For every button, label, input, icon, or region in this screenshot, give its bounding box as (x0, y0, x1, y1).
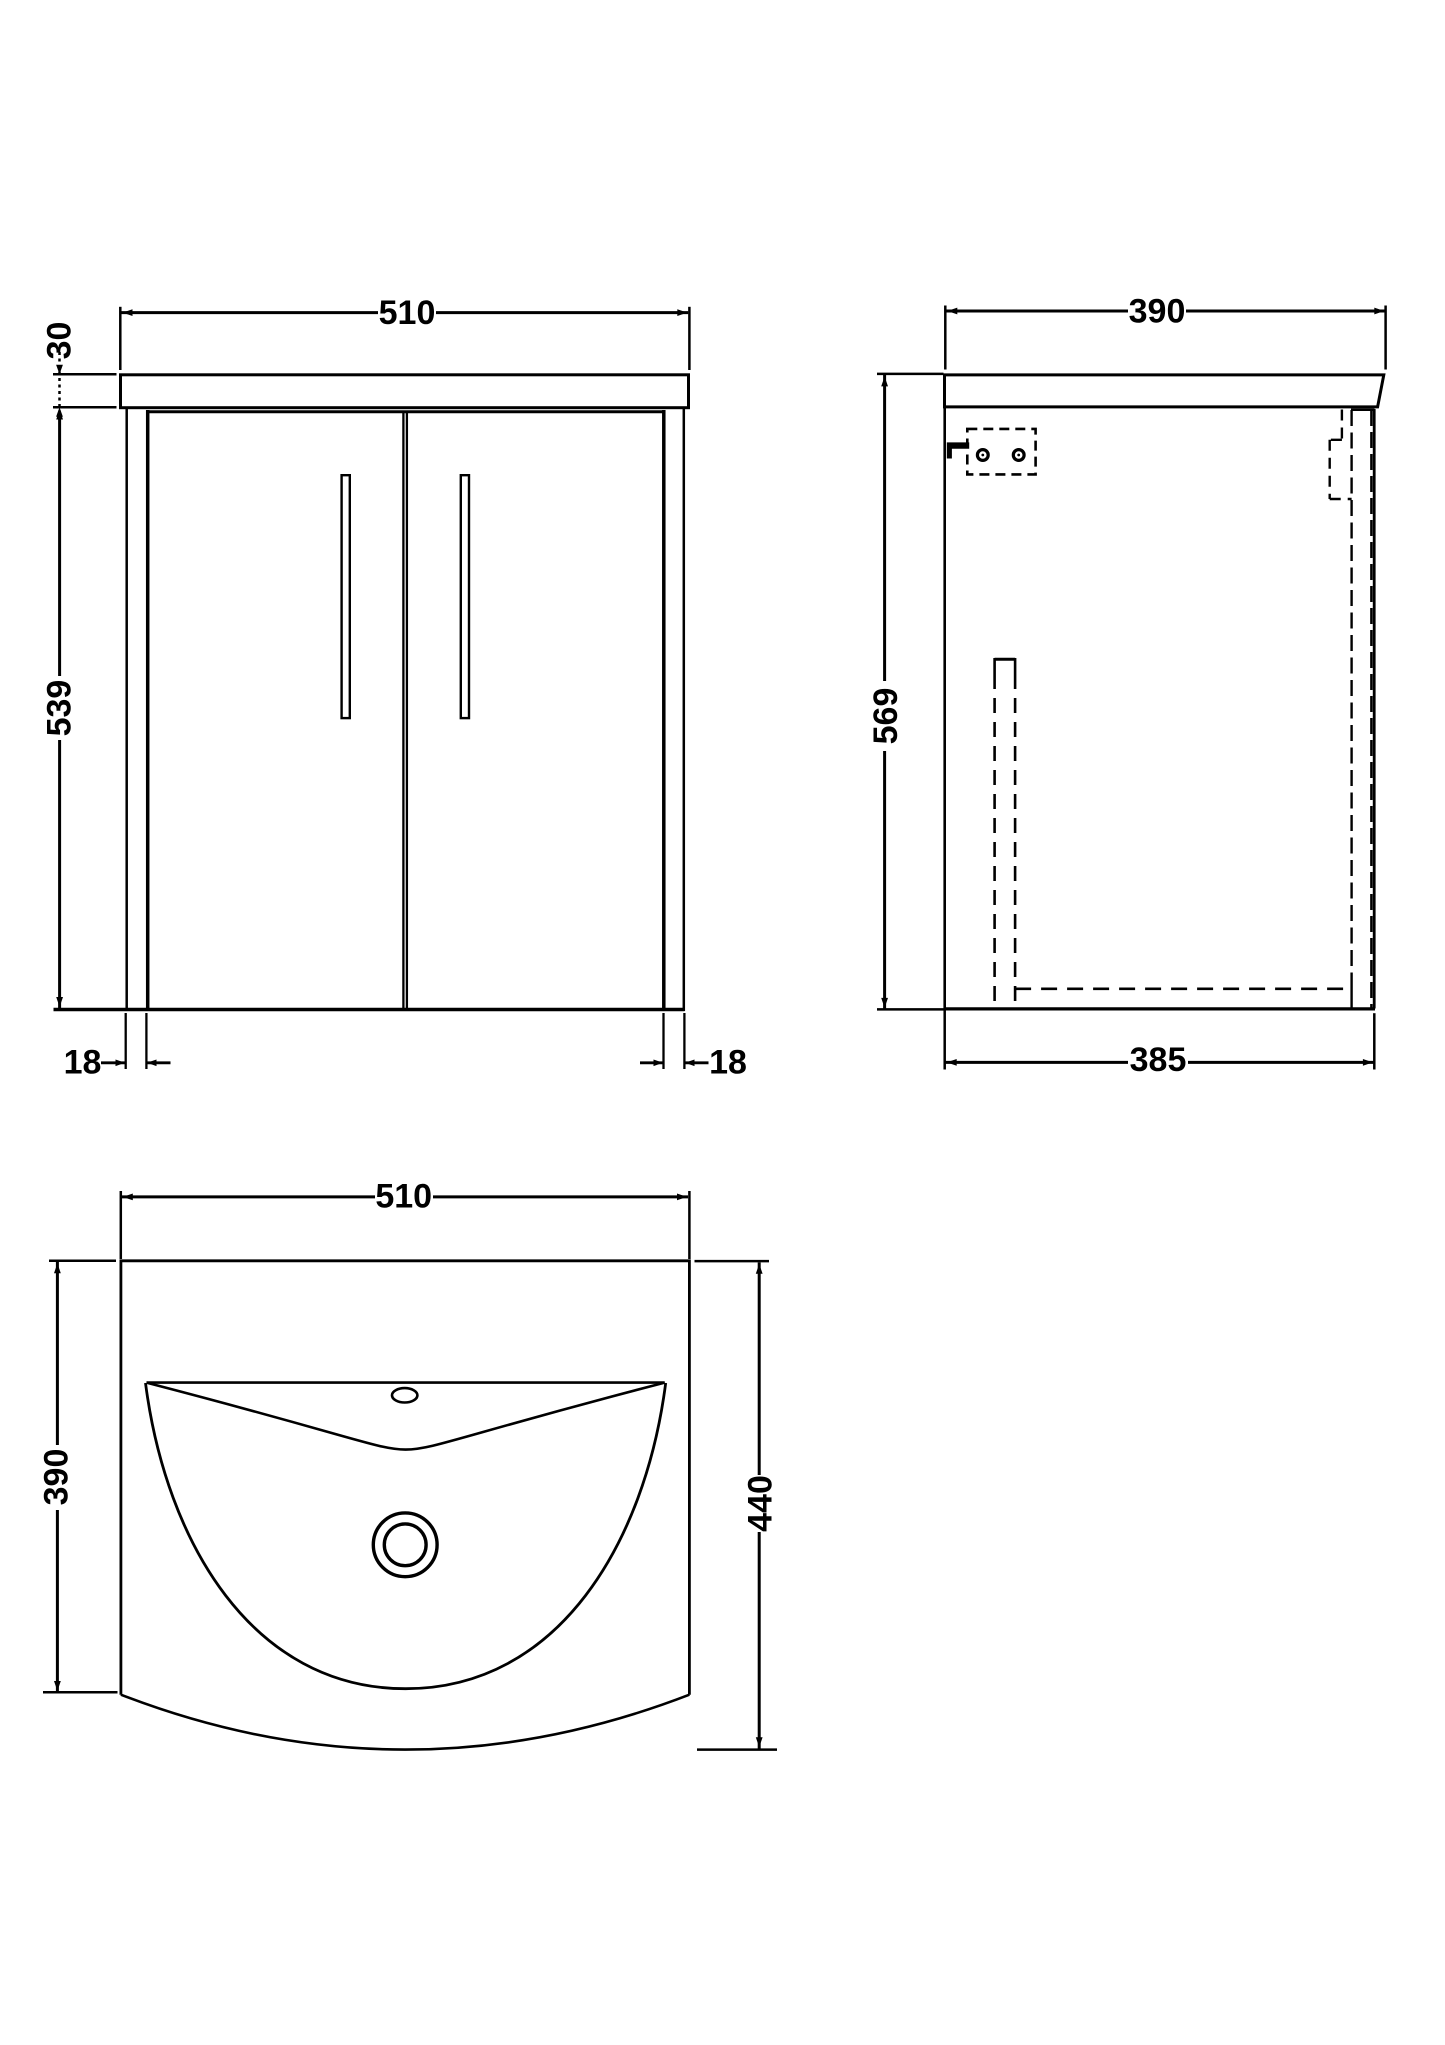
svg-text:440: 440 (741, 1475, 779, 1532)
svg-text:510: 510 (379, 294, 436, 332)
svg-text:569: 569 (867, 688, 905, 745)
svg-text:539: 539 (41, 680, 79, 737)
svg-text:18: 18 (709, 1044, 747, 1082)
svg-text:385: 385 (1130, 1041, 1187, 1079)
svg-text:30: 30 (41, 322, 79, 360)
svg-text:390: 390 (1129, 292, 1186, 330)
svg-text:510: 510 (375, 1178, 432, 1216)
svg-text:18: 18 (64, 1044, 102, 1082)
svg-text:390: 390 (38, 1449, 76, 1506)
